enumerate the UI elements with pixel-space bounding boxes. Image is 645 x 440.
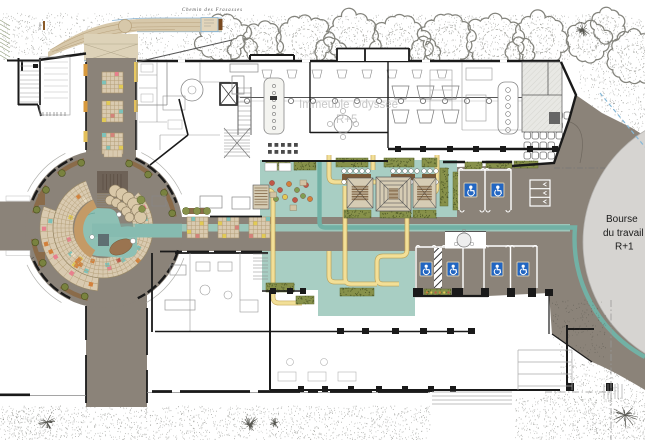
svg-text:R+1: R+1 [615,242,634,253]
svg-text:Immeuble Odyssée: Immeuble Odyssée [299,99,398,111]
svg-text:Chemin des Frasasses: Chemin des Frasasses [182,8,243,13]
svg-text:du travail: du travail [603,228,644,239]
svg-text:R+5: R+5 [336,114,357,126]
svg-text:Bourse: Bourse [606,214,638,225]
svg-text:Tram: Tram [38,22,42,31]
